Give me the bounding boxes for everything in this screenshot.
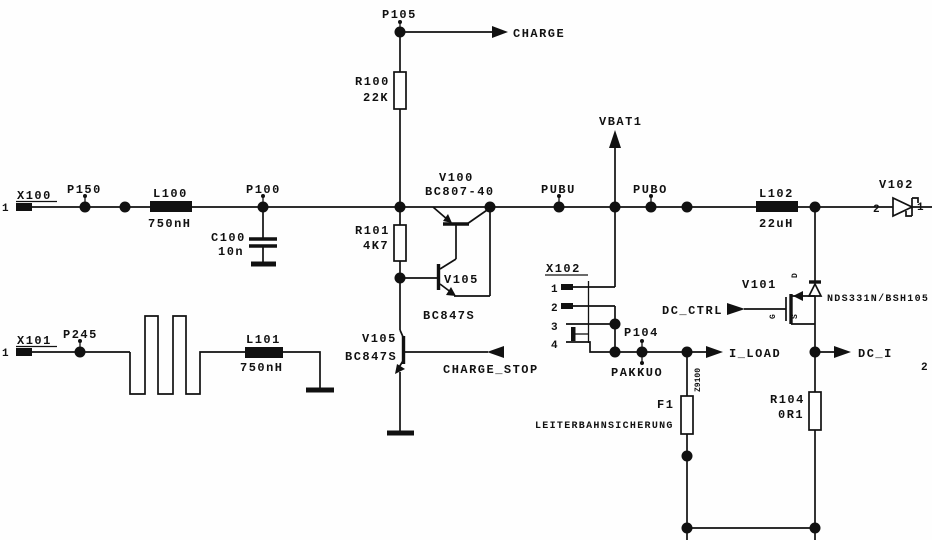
v101-ref: V101 <box>742 278 777 292</box>
net-charge-stop: CHARGE_STOP <box>405 346 539 377</box>
net-charge: CHARGE <box>400 26 565 41</box>
inductor-body-icon <box>245 347 283 358</box>
schematic-canvas: 1 X100 P150 L100 750nH P100 C100 10n R10… <box>0 0 932 540</box>
f1-marking: Z9100 <box>694 368 703 392</box>
x102-pin4-wire <box>566 342 615 352</box>
testpoint-p245: P245 <box>63 328 98 358</box>
inductor-l100: L100 750nH <box>148 187 192 231</box>
i-load-label: I_LOAD <box>729 347 781 361</box>
testpoint-dot <box>554 202 565 213</box>
inductor-body-icon <box>150 201 192 212</box>
v100-ref: V100 <box>439 171 474 185</box>
x101-pin-number: 1 <box>2 348 9 360</box>
v101-source-letter: S <box>791 314 800 319</box>
c100-ref: C100 <box>211 231 246 245</box>
pubo-label: PUBO <box>633 183 668 197</box>
inductor-l101: L101 750nH <box>240 333 284 375</box>
pakkuo-label: PAKKUO <box>611 366 663 380</box>
resistor-body-icon <box>394 225 406 261</box>
v105a-part: BC847S <box>423 309 475 323</box>
pubu-label: PUBU <box>541 183 576 197</box>
l101-ref: L101 <box>246 333 281 347</box>
arrow-right-icon <box>706 346 723 358</box>
npn-arrow-icon <box>446 287 456 296</box>
charge-stop-label: CHARGE_STOP <box>443 363 539 377</box>
junction-dot <box>610 319 621 330</box>
testpoint-dot <box>646 202 657 213</box>
r104-ref: R104 <box>770 393 805 407</box>
v105b-part: BC847S <box>345 350 397 364</box>
fuse-f1: Z9100 F1 LEITERBAHNSICHERUNG <box>535 352 703 540</box>
l100-value: 750nH <box>148 217 192 231</box>
testpoint-dot <box>637 347 648 358</box>
junction-dot <box>682 202 693 213</box>
x102-pin1-number: 1 <box>551 284 558 296</box>
f1-note: LEITERBAHNSICHERUNG <box>535 421 674 432</box>
charge-label: CHARGE <box>513 27 565 41</box>
resistor-body-icon <box>809 392 821 430</box>
resistor-r104: R104 0R1 <box>770 352 821 540</box>
r100-ref: R100 <box>355 75 390 89</box>
p100-label: P100 <box>246 183 281 197</box>
dc-i-label: DC_I <box>858 347 893 361</box>
testpoint-pubo: PUBO <box>633 183 668 213</box>
fuse-body-icon <box>681 396 693 434</box>
edge-pin-number: 2 <box>921 362 928 374</box>
v101-gate-letter: G <box>769 314 778 319</box>
junction-dot <box>682 523 693 534</box>
junction-dot <box>682 451 693 462</box>
testpoint-pubu: PUBU <box>541 183 576 213</box>
arrow-right-icon <box>834 346 851 358</box>
v101-part: NDS331N/BSH105 <box>827 293 929 305</box>
v105a-ref: V105 <box>444 273 479 287</box>
r100-value: 22K <box>363 91 389 105</box>
resistor-body-icon <box>394 72 406 109</box>
junction-dot <box>120 202 131 213</box>
v102-pin-anode: 2 <box>873 204 880 216</box>
v102-ref: V102 <box>879 178 914 192</box>
x102-ref: X102 <box>546 262 581 276</box>
p150-label: P150 <box>67 183 102 197</box>
p105-label: P105 <box>382 8 417 22</box>
diode-triangle-icon <box>893 198 912 216</box>
connector-x100: 1 X100 <box>2 189 57 215</box>
connector-pin-icon <box>16 203 32 211</box>
net-dc-i: DC_I <box>815 346 893 361</box>
x102-pin2-wire <box>573 306 615 324</box>
connector-x102: X102 1 2 3 4 <box>545 207 621 358</box>
v101-drain-letter: D <box>791 273 800 278</box>
inductor-l102: L102 22uH <box>756 187 798 231</box>
schematic-page: 1 X100 P150 L100 750nH P100 C100 10n R10… <box>0 0 932 540</box>
diode-v102: V102 2 1 <box>873 178 924 216</box>
testpoint-p150: P150 <box>67 183 102 213</box>
v100-collector <box>467 208 490 224</box>
inductor-body-icon <box>756 201 798 212</box>
p245-label: P245 <box>63 328 98 342</box>
v105a-collector <box>440 259 456 269</box>
junction-dot <box>810 523 821 534</box>
x102-contact-bar-icon <box>571 327 576 341</box>
pnp-arrow-icon <box>443 214 452 223</box>
vbat1-label: VBAT1 <box>599 115 643 129</box>
arrow-right-icon <box>492 26 508 38</box>
meander-trace-icon <box>130 316 245 394</box>
v105b-ref: V105 <box>362 332 397 346</box>
resistor-r101: R101 4K7 <box>355 224 406 261</box>
testpoint-dot <box>80 202 91 213</box>
transistor-v105b: V105 BC847S <box>345 330 414 433</box>
connector-pin-icon <box>16 348 32 356</box>
c100-value: 10n <box>218 245 244 259</box>
capacitor-c100: C100 10n <box>211 207 277 264</box>
testpoint-tip-dot <box>640 361 644 365</box>
testpoint-p104: P104 <box>624 326 659 365</box>
testpoint-dot <box>75 347 86 358</box>
arrow-up-icon <box>609 130 621 148</box>
l102-value: 22uH <box>759 217 794 231</box>
connector-x101: 1 X101 <box>2 334 57 360</box>
x102-pin4-number: 4 <box>551 340 558 352</box>
f1-ref: F1 <box>657 398 674 412</box>
r104-value: 0R1 <box>778 408 804 422</box>
l100-ref: L100 <box>153 187 188 201</box>
r101-value: 4K7 <box>363 239 389 253</box>
v100-part: BC807-40 <box>425 185 495 199</box>
l101-gnd-wire <box>283 352 320 388</box>
transistor-v100: V100 BC807-40 <box>395 171 496 259</box>
net-i-load: I_LOAD <box>687 346 781 361</box>
net-dc-ctrl: DC_CTRL <box>662 303 786 318</box>
x102-pin3-number: 3 <box>551 322 558 334</box>
v102-pin-cathode: 1 <box>917 202 924 214</box>
arrow-right-icon <box>727 303 745 315</box>
connector-pin-icon <box>561 284 573 290</box>
l102-ref: L102 <box>759 187 794 201</box>
capacitor-plates-icon <box>249 239 277 246</box>
r101-ref: R101 <box>355 224 390 238</box>
connector-pin-icon <box>561 303 573 309</box>
body-diode-triangle-icon <box>809 284 821 296</box>
p104-label: P104 <box>624 326 659 340</box>
arrow-left-icon <box>487 346 504 358</box>
resistor-r100: R100 22K <box>355 72 406 109</box>
mosfet-body-arrow-icon <box>793 291 803 301</box>
x100-pin-number: 1 <box>2 203 9 215</box>
dc-ctrl-label: DC_CTRL <box>662 304 723 318</box>
l101-value: 750nH <box>240 361 284 375</box>
x102-pin2-number: 2 <box>551 303 558 315</box>
testpoint-p105: P105 <box>382 8 417 38</box>
